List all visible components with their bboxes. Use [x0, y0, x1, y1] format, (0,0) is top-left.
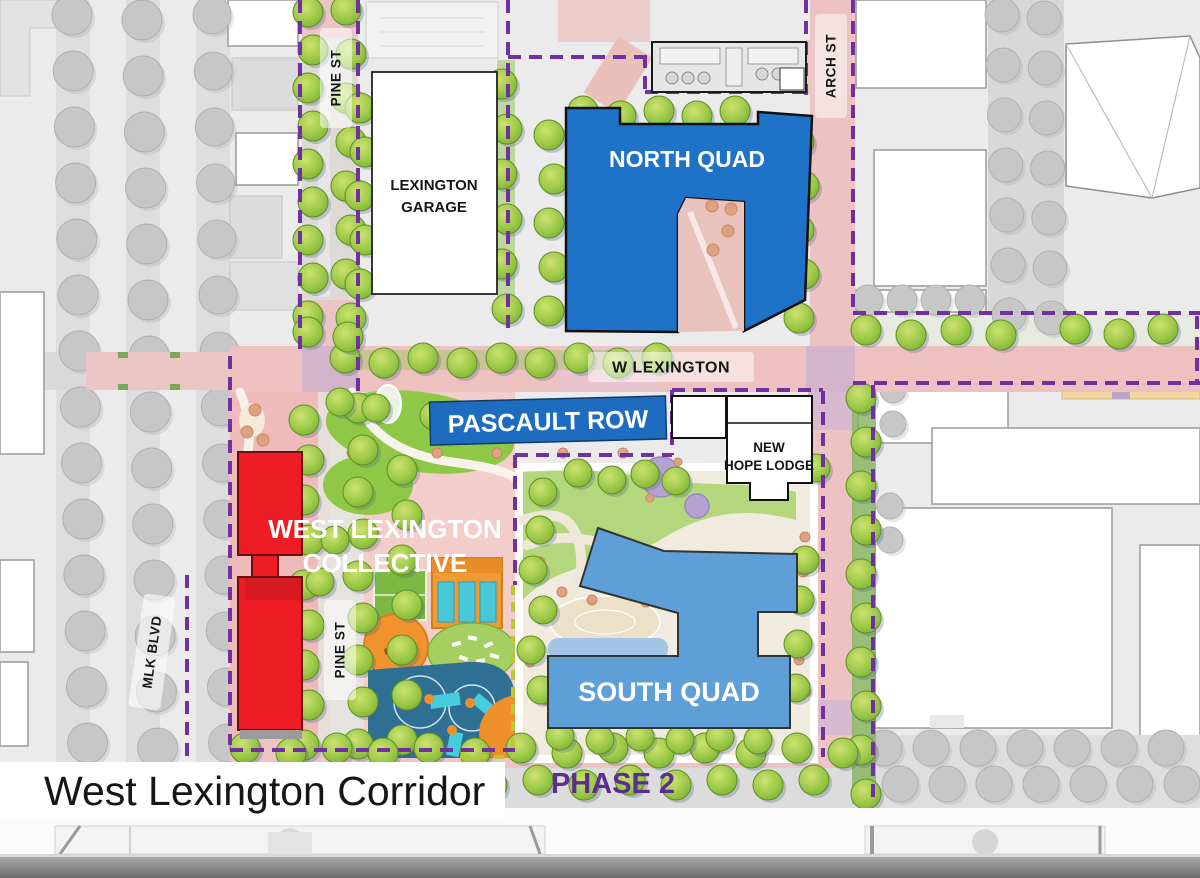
tree-icon: [586, 726, 614, 754]
tree-icon: [986, 320, 1016, 350]
tree-icon: [784, 630, 812, 658]
tree-icon: [662, 467, 690, 495]
tree-icon: [1060, 314, 1090, 344]
w-lexington-road: [86, 352, 230, 390]
new-hope-lodge-label: HOPE LODGE: [724, 458, 814, 473]
tree-icon: [392, 680, 422, 710]
context-tree-icon: [882, 766, 918, 802]
context-tree-icon: [1054, 730, 1090, 766]
tree-icon: [387, 455, 417, 485]
context-tree-icon: [1164, 766, 1200, 802]
tree-icon: [289, 405, 319, 435]
tree-icon: [447, 348, 477, 378]
tree-icon: [486, 343, 516, 373]
tree-icon: [851, 315, 881, 345]
tree-icon: [799, 765, 829, 795]
context-tree-icon: [921, 285, 951, 315]
context-tree-icon: [56, 163, 96, 203]
new-hope-lodge-label: NEW: [753, 440, 785, 455]
south-quad-label: SOUTH QUAD: [578, 677, 760, 707]
context-tree-icon: [1148, 730, 1184, 766]
tree-icon: [534, 296, 564, 326]
context-tree-icon: [880, 411, 906, 437]
tree-icon: [720, 96, 750, 126]
context-tree-icon: [991, 248, 1025, 282]
tree-icon: [534, 120, 564, 150]
context-tree-icon: [126, 168, 166, 208]
context-tree-icon: [63, 499, 103, 539]
context-tree-icon: [130, 392, 170, 432]
tree-icon: [564, 459, 592, 487]
phase2-label: PHASE 2: [551, 768, 675, 800]
tree-icon: [293, 73, 323, 103]
context-tree-icon: [134, 560, 174, 600]
site-plan-map: LEXINGTON GARAGE NORTH QUAD PASCAULT ROW: [0, 0, 1200, 878]
tree-icon: [666, 726, 694, 754]
west-lexington-collective-label: COLLECTIVE: [303, 548, 468, 578]
lexington-garage-label: GARAGE: [401, 199, 467, 216]
tree-icon: [526, 516, 554, 544]
context-tree-icon: [1117, 766, 1153, 802]
footer-highlight: [0, 854, 1200, 857]
lexington-garage-label: LEXINGTON: [390, 177, 477, 194]
tree-icon: [529, 478, 557, 506]
context-tree-icon: [122, 0, 162, 40]
footer-bar: [0, 857, 1200, 878]
tree-icon: [293, 317, 323, 347]
context-tree-icon: [989, 148, 1023, 182]
tree-icon: [851, 515, 881, 545]
context-tree-icon: [1032, 201, 1066, 235]
w-lexington-label: W LEXINGTON: [612, 360, 730, 377]
tree-icon: [851, 603, 881, 633]
tree-icon: [525, 348, 555, 378]
context-tree-icon: [1023, 766, 1059, 802]
context-tree-icon: [60, 387, 100, 427]
context-tree-icon: [1029, 101, 1063, 135]
context-tree-icon: [65, 611, 105, 651]
tree-icon: [529, 596, 557, 624]
tree-icon: [851, 427, 881, 457]
context-tree-icon: [976, 766, 1012, 802]
tree-icon: [293, 0, 323, 27]
context-tree-icon: [128, 280, 168, 320]
context-tree-icon: [960, 730, 996, 766]
tree-icon: [851, 779, 881, 809]
context-tree-icon: [62, 443, 102, 483]
west-lexington-collective-label: WEST LEXINGTON: [268, 514, 502, 544]
tree-icon: [348, 435, 378, 465]
tree-icon: [1148, 314, 1178, 344]
tree-icon: [644, 96, 674, 126]
north-quad-label: NORTH QUAD: [609, 146, 765, 172]
context-tree-icon: [1007, 730, 1043, 766]
tree-icon: [539, 164, 569, 194]
context-tree-icon: [132, 448, 172, 488]
context-tree-icon: [985, 0, 1019, 32]
context-tree-icon: [127, 224, 167, 264]
context-tree-icon: [57, 219, 97, 259]
tree-icon: [298, 187, 328, 217]
arch-st-label: ARCH ST: [824, 34, 839, 98]
tree-icon: [534, 208, 564, 238]
context-tree-icon: [853, 285, 883, 315]
context-tree-icon: [54, 107, 94, 147]
context-tree-icon: [990, 198, 1024, 232]
tree-icon: [744, 726, 772, 754]
context-tree-icon: [123, 56, 163, 96]
context-building: [0, 292, 44, 454]
tree-icon: [753, 770, 783, 800]
tree-icon: [517, 636, 545, 664]
rooftop-utility-building: [652, 42, 806, 92]
tree-icon: [782, 733, 812, 763]
tree-icon: [392, 590, 422, 620]
tree-icon: [369, 348, 399, 378]
context-tree-icon: [913, 730, 949, 766]
context-tree-icon: [197, 164, 235, 202]
tree-icon: [519, 556, 547, 584]
pascault-row-building: PASCAULT ROW: [429, 396, 666, 445]
context-tree-icon: [66, 667, 106, 707]
new-hope-lodge-annex: [672, 396, 726, 438]
context-tree-icon: [1028, 51, 1062, 85]
tree-icon: [851, 691, 881, 721]
context-tree-icon: [1101, 730, 1137, 766]
context-tree-icon: [1031, 151, 1065, 185]
tree-icon: [539, 252, 569, 282]
tree-icon: [343, 477, 373, 507]
context-tree-icon: [193, 0, 231, 34]
context-tree-icon: [133, 504, 173, 544]
context-tree-icon: [58, 275, 98, 315]
tree-icon: [362, 394, 390, 422]
context-tree-icon: [1070, 766, 1106, 802]
tree-icon: [631, 460, 659, 488]
context-tree-icon: [124, 112, 164, 152]
context-tree-icon: [64, 555, 104, 595]
tree-icon: [387, 635, 417, 665]
tree-icon: [828, 738, 858, 768]
tree-icon: [408, 343, 438, 373]
tree-icon: [707, 765, 737, 795]
tree-icon: [293, 149, 323, 179]
context-tree-icon: [1027, 1, 1061, 35]
context-tree-icon: [955, 285, 985, 315]
tree-icon: [298, 263, 328, 293]
context-tree-icon: [198, 220, 236, 258]
context-tree-icon: [877, 493, 903, 519]
page-title: West Lexington Corridor: [44, 768, 485, 814]
tree-icon: [1104, 319, 1134, 349]
tree-icon: [326, 388, 354, 416]
west-lexington-collective-building: [238, 452, 302, 739]
context-tree-icon: [68, 723, 108, 763]
context-tree-icon: [52, 0, 92, 35]
pine-st-north-label: PINE ST: [329, 49, 344, 106]
tree-icon: [523, 765, 553, 795]
context-tree-icon: [1033, 251, 1067, 285]
title-block: West Lexington Corridor: [0, 762, 505, 818]
context-tree-icon: [195, 108, 233, 146]
tree-icon: [896, 320, 926, 350]
tree-icon: [293, 225, 323, 255]
pine-st-south-label: PINE ST: [333, 621, 348, 678]
context-tree-icon: [194, 52, 232, 90]
pascault-row-label: PASCAULT ROW: [447, 405, 649, 438]
tree-icon: [598, 466, 626, 494]
context-tree-icon: [199, 276, 237, 314]
context-tree-icon: [887, 285, 917, 315]
context-tree-icon: [53, 51, 93, 91]
tree-icon: [941, 315, 971, 345]
context-tree-icon: [929, 766, 965, 802]
context-tree-icon: [987, 98, 1021, 132]
context-tree-icon: [986, 48, 1020, 82]
